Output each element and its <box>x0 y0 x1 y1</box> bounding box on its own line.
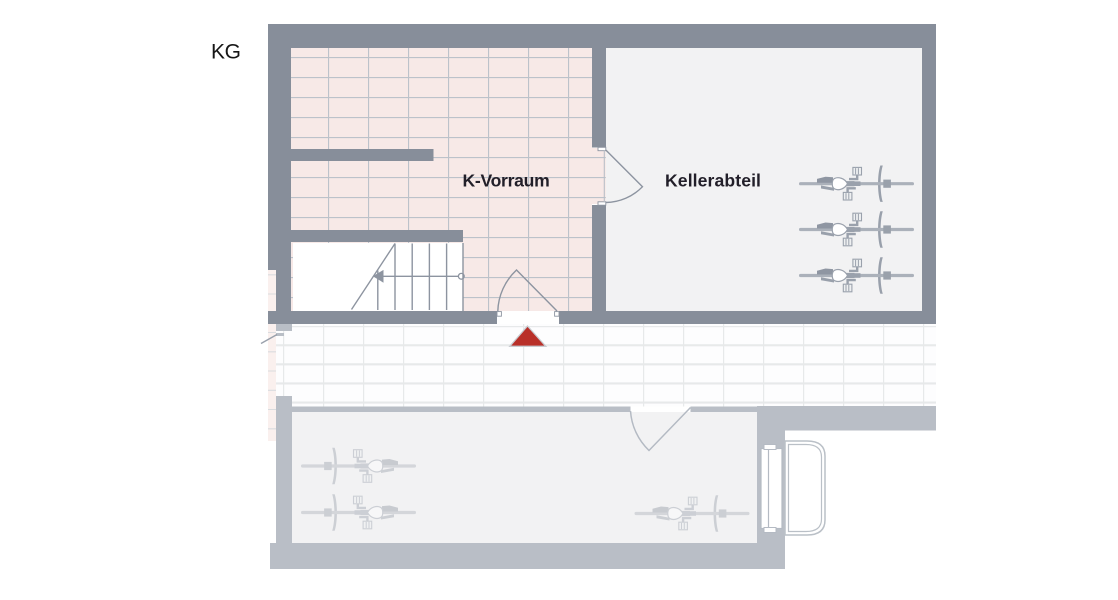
svg-text:Kellerabteil: Kellerabteil <box>665 171 761 191</box>
svg-text:K-Vorraum: K-Vorraum <box>463 170 550 190</box>
svg-text:KG: KG <box>211 40 241 63</box>
